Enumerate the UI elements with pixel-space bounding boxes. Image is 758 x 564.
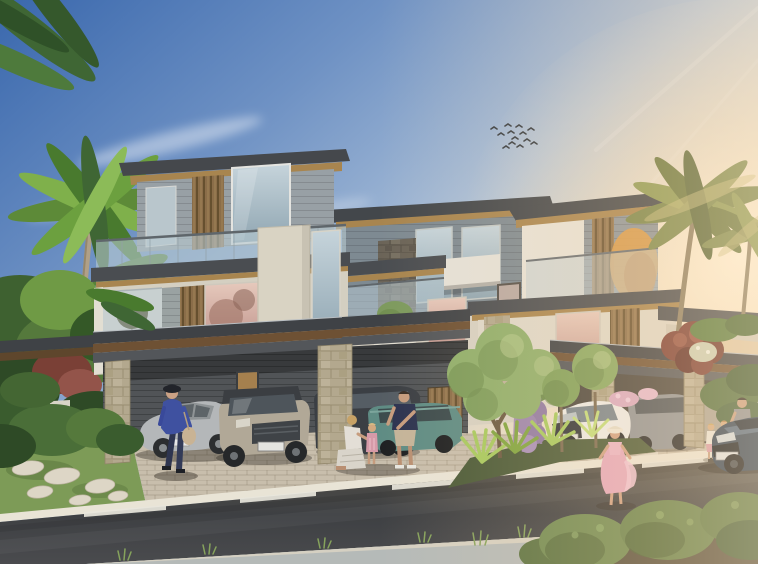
villa-rendering [0, 0, 758, 564]
villa-rendering-canvas [0, 0, 758, 564]
sunset-light-wash [0, 0, 758, 564]
